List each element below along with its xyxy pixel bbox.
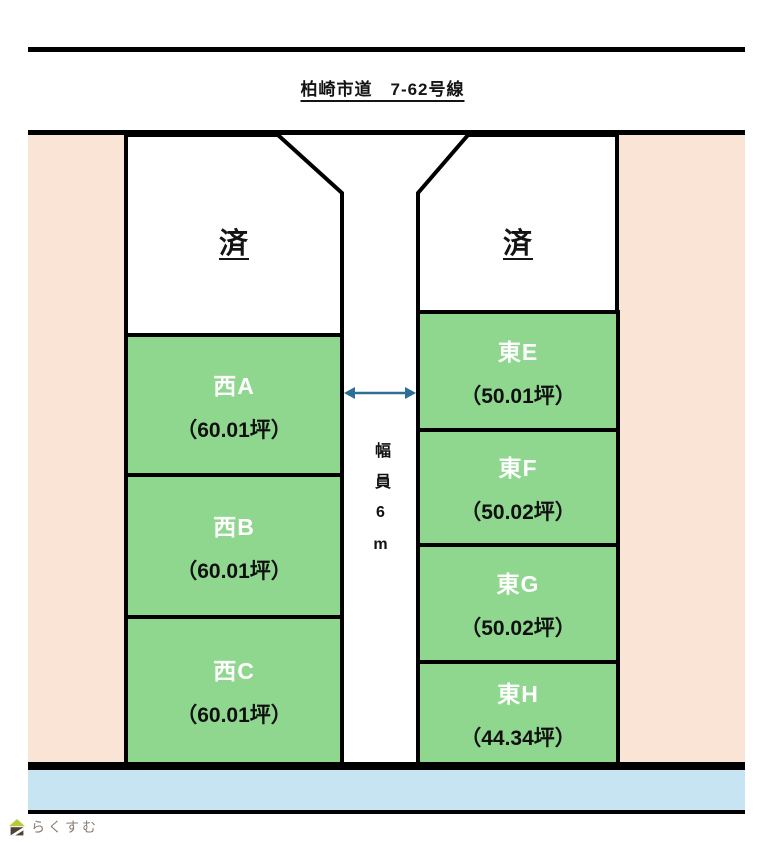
bottom-blue-strip xyxy=(28,770,745,810)
east-sold-label: 済 xyxy=(418,220,618,262)
logo-text: らくすむ xyxy=(31,817,99,837)
plot-area: （44.34坪） xyxy=(460,722,576,752)
plot-east-g: 東G （50.02坪） xyxy=(418,545,618,662)
road-width-label: 幅員6m xyxy=(372,442,388,568)
east-sold-text: 済 xyxy=(503,228,533,260)
road-width-arrowhead-right xyxy=(405,387,416,399)
footer-logo: らくすむ xyxy=(8,817,99,837)
road-name-text: 柏崎市道 7-62号線 xyxy=(300,80,464,99)
plot-east-h: 東H （44.34坪） xyxy=(418,662,618,764)
plot-west-c: 西C （60.01坪） xyxy=(126,617,342,764)
left-margin-strip xyxy=(28,135,126,765)
plot-west-a: 西A （60.01坪） xyxy=(126,335,342,475)
plot-east-f: 東F （50.02坪） xyxy=(418,430,618,545)
plot-name: 西A xyxy=(213,367,255,401)
plot-area: （50.02坪） xyxy=(460,612,576,642)
plot-name: 東G xyxy=(497,565,540,599)
plot-name: 東E xyxy=(498,333,538,367)
top-rule-line xyxy=(28,47,745,52)
west-sold-text: 済 xyxy=(219,228,249,260)
land-plot-map-page: 柏崎市道 7-62号線 済 済 西A （60.01坪） 西B （60.01坪） … xyxy=(0,0,765,842)
page-title: 柏崎市道 7-62号線 xyxy=(0,75,765,100)
plot-map-drawing xyxy=(0,0,765,842)
plot-area: （50.02坪） xyxy=(460,496,576,526)
plot-name: 東H xyxy=(497,675,539,709)
plot-name: 西B xyxy=(213,508,255,542)
plot-area: （60.01坪） xyxy=(176,555,292,585)
road-width-arrowhead-left xyxy=(344,387,355,399)
west-sold-label: 済 xyxy=(126,220,342,262)
rakusumu-house-icon xyxy=(8,818,26,836)
plot-name: 東F xyxy=(498,449,537,483)
plot-west-b: 西B （60.01坪） xyxy=(126,475,342,617)
bottom-strip-bottom-border xyxy=(28,810,745,814)
plot-east-e: 東E （50.01坪） xyxy=(418,312,618,430)
plot-name: 西C xyxy=(213,652,255,686)
road-width-label-wrap: 幅員6m xyxy=(346,442,414,587)
plot-area: （60.01坪） xyxy=(176,699,292,729)
plot-area: （50.01坪） xyxy=(460,380,576,410)
right-margin-strip xyxy=(619,135,745,765)
plot-area: （60.01坪） xyxy=(176,414,292,444)
